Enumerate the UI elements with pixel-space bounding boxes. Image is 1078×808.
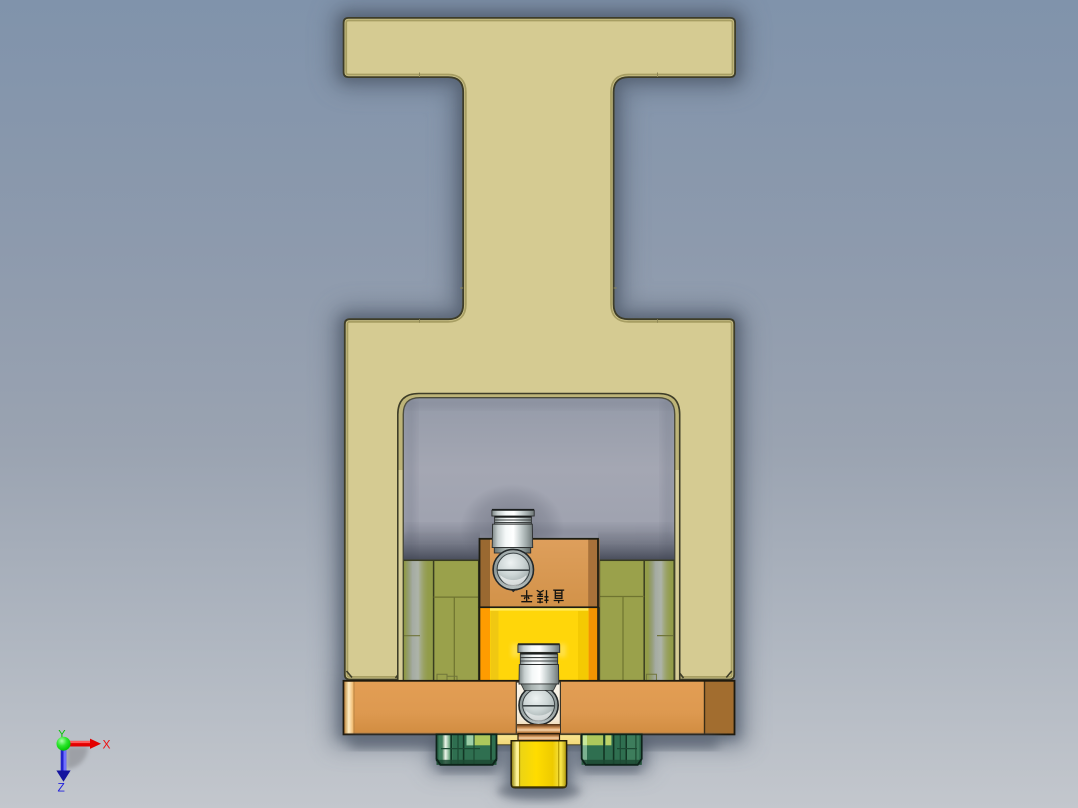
svg-text:Z: Z [58,781,65,795]
svg-text:X: X [103,738,111,752]
